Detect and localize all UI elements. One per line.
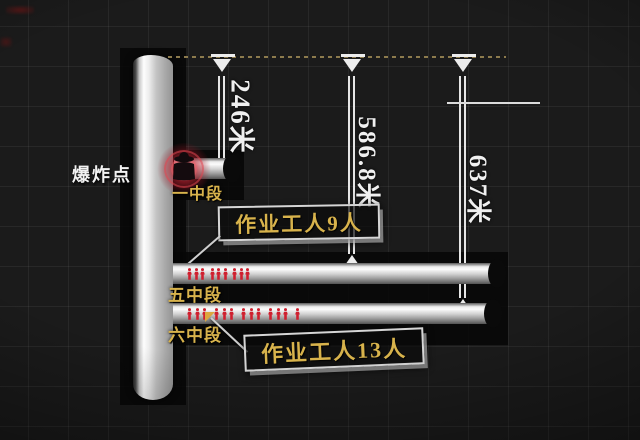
worker-figure <box>245 268 250 280</box>
callout-workers-13-text: 作业工人13人 <box>260 330 407 368</box>
measure-value-637: 637米 <box>462 155 498 226</box>
worker-figure <box>187 268 192 280</box>
callout-workers-9: 作业工人9人 <box>218 204 381 242</box>
worker-figure <box>210 268 215 280</box>
mine-shaft <box>133 55 173 400</box>
worker-figure <box>195 308 200 320</box>
miner-silhouette-icon <box>170 151 198 182</box>
measure-top-bar <box>452 54 476 57</box>
worker-figure <box>194 268 199 280</box>
measure-top-bar <box>341 54 365 57</box>
worker-figure <box>200 268 205 280</box>
worker-figure <box>256 308 261 320</box>
worker-figure <box>295 308 300 320</box>
measure-cross-tick <box>447 102 540 104</box>
measure-value-586: 586.8米 <box>351 116 387 209</box>
worker-figure <box>283 308 288 320</box>
callout-workers-9-text: 作业工人9人 <box>235 206 363 238</box>
mine-diagram: 246米 586.8米 637米 一中段 爆炸点 作业工人9人 <box>0 0 640 440</box>
worker-row-level5 <box>187 267 250 280</box>
arrow-down-icon <box>343 59 361 72</box>
worker-figure <box>268 308 273 320</box>
label-explosion-point: 爆炸点 <box>72 161 132 187</box>
worker-figure <box>222 308 227 320</box>
arrow-down-icon <box>454 59 472 72</box>
watermark-smudge <box>0 37 12 47</box>
arrow-down-icon <box>213 59 231 72</box>
measure-value-246: 246米 <box>224 79 263 155</box>
worker-figure <box>187 308 192 320</box>
label-level6: 六中段 <box>168 321 222 346</box>
label-level1: 一中段 <box>172 180 223 204</box>
worker-figure <box>241 308 246 320</box>
worker-figure <box>249 308 254 320</box>
worker-figure <box>276 308 281 320</box>
worker-figure <box>239 268 244 280</box>
measure-top-bar <box>211 54 235 57</box>
worker-figure <box>229 308 234 320</box>
worker-figure <box>216 268 221 280</box>
watermark-smudge <box>6 6 34 14</box>
worker-row-level6 <box>187 307 300 320</box>
callout-workers-13: 作业工人13人 <box>243 327 424 372</box>
worker-figure <box>223 268 228 280</box>
worker-figure <box>232 268 237 280</box>
